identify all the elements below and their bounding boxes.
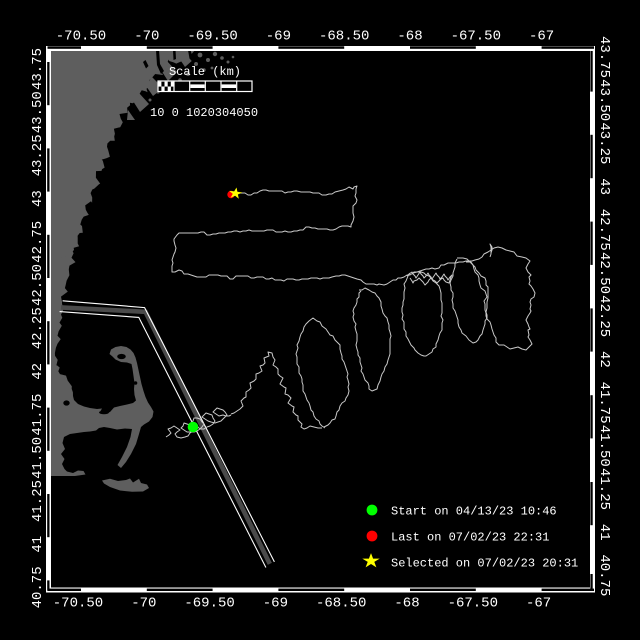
- svg-text:40.75: 40.75: [30, 566, 46, 608]
- svg-text:42.50: 42.50: [30, 264, 46, 306]
- svg-text:41.50: 41.50: [596, 425, 612, 467]
- svg-text:42: 42: [30, 363, 46, 380]
- svg-text:41.50: 41.50: [30, 437, 46, 479]
- svg-text:41.25: 41.25: [596, 468, 612, 510]
- svg-text:-69: -69: [263, 596, 288, 612]
- svg-text:43.25: 43.25: [596, 122, 612, 164]
- svg-text:41.75: 41.75: [596, 382, 612, 424]
- svg-text:Selected on 07/02/23 20:31: Selected on 07/02/23 20:31: [391, 557, 578, 571]
- svg-text:41.75: 41.75: [30, 394, 46, 436]
- svg-text:-68: -68: [394, 596, 419, 612]
- svg-text:43.25: 43.25: [30, 134, 46, 176]
- svg-text:43.50: 43.50: [596, 79, 612, 121]
- svg-text:Last on 07/02/23 22:31: Last on 07/02/23 22:31: [391, 531, 549, 545]
- svg-text:42: 42: [596, 351, 612, 368]
- svg-text:-69: -69: [266, 29, 291, 45]
- svg-text:43: 43: [30, 190, 46, 207]
- svg-text:43: 43: [596, 178, 612, 195]
- svg-text:41: 41: [30, 536, 46, 553]
- svg-text:Scale (km): Scale (km): [169, 65, 241, 79]
- svg-text:-68.50: -68.50: [319, 29, 369, 45]
- svg-text:41.25: 41.25: [30, 480, 46, 522]
- svg-text:-67.50: -67.50: [451, 29, 501, 45]
- svg-text:-68: -68: [397, 29, 422, 45]
- svg-text:Start on 04/13/23 10:46: Start on 04/13/23 10:46: [391, 505, 557, 519]
- svg-text:42.75: 42.75: [596, 209, 612, 251]
- svg-text:43.50: 43.50: [30, 91, 46, 133]
- svg-text:-69.50: -69.50: [184, 596, 234, 612]
- svg-text:40.75: 40.75: [596, 554, 612, 596]
- svg-text:42.25: 42.25: [30, 307, 46, 349]
- svg-text:-70.50: -70.50: [53, 596, 103, 612]
- svg-text:-67: -67: [526, 596, 551, 612]
- svg-text:43.75: 43.75: [596, 36, 612, 78]
- svg-text:41: 41: [596, 524, 612, 541]
- svg-text:-70: -70: [134, 29, 159, 45]
- svg-text:42.25: 42.25: [596, 295, 612, 337]
- svg-text:-70.50: -70.50: [56, 29, 106, 45]
- svg-text:-67: -67: [529, 29, 554, 45]
- svg-text:-67.50: -67.50: [448, 596, 498, 612]
- svg-text:42.50: 42.50: [596, 252, 612, 294]
- svg-text:-69.50: -69.50: [187, 29, 237, 45]
- svg-text:43.75: 43.75: [30, 48, 46, 90]
- svg-text:-70: -70: [131, 596, 156, 612]
- svg-text:42.75: 42.75: [30, 221, 46, 263]
- svg-text:10 0 1020304050: 10 0 1020304050: [150, 106, 258, 120]
- svg-text:-68.50: -68.50: [316, 596, 366, 612]
